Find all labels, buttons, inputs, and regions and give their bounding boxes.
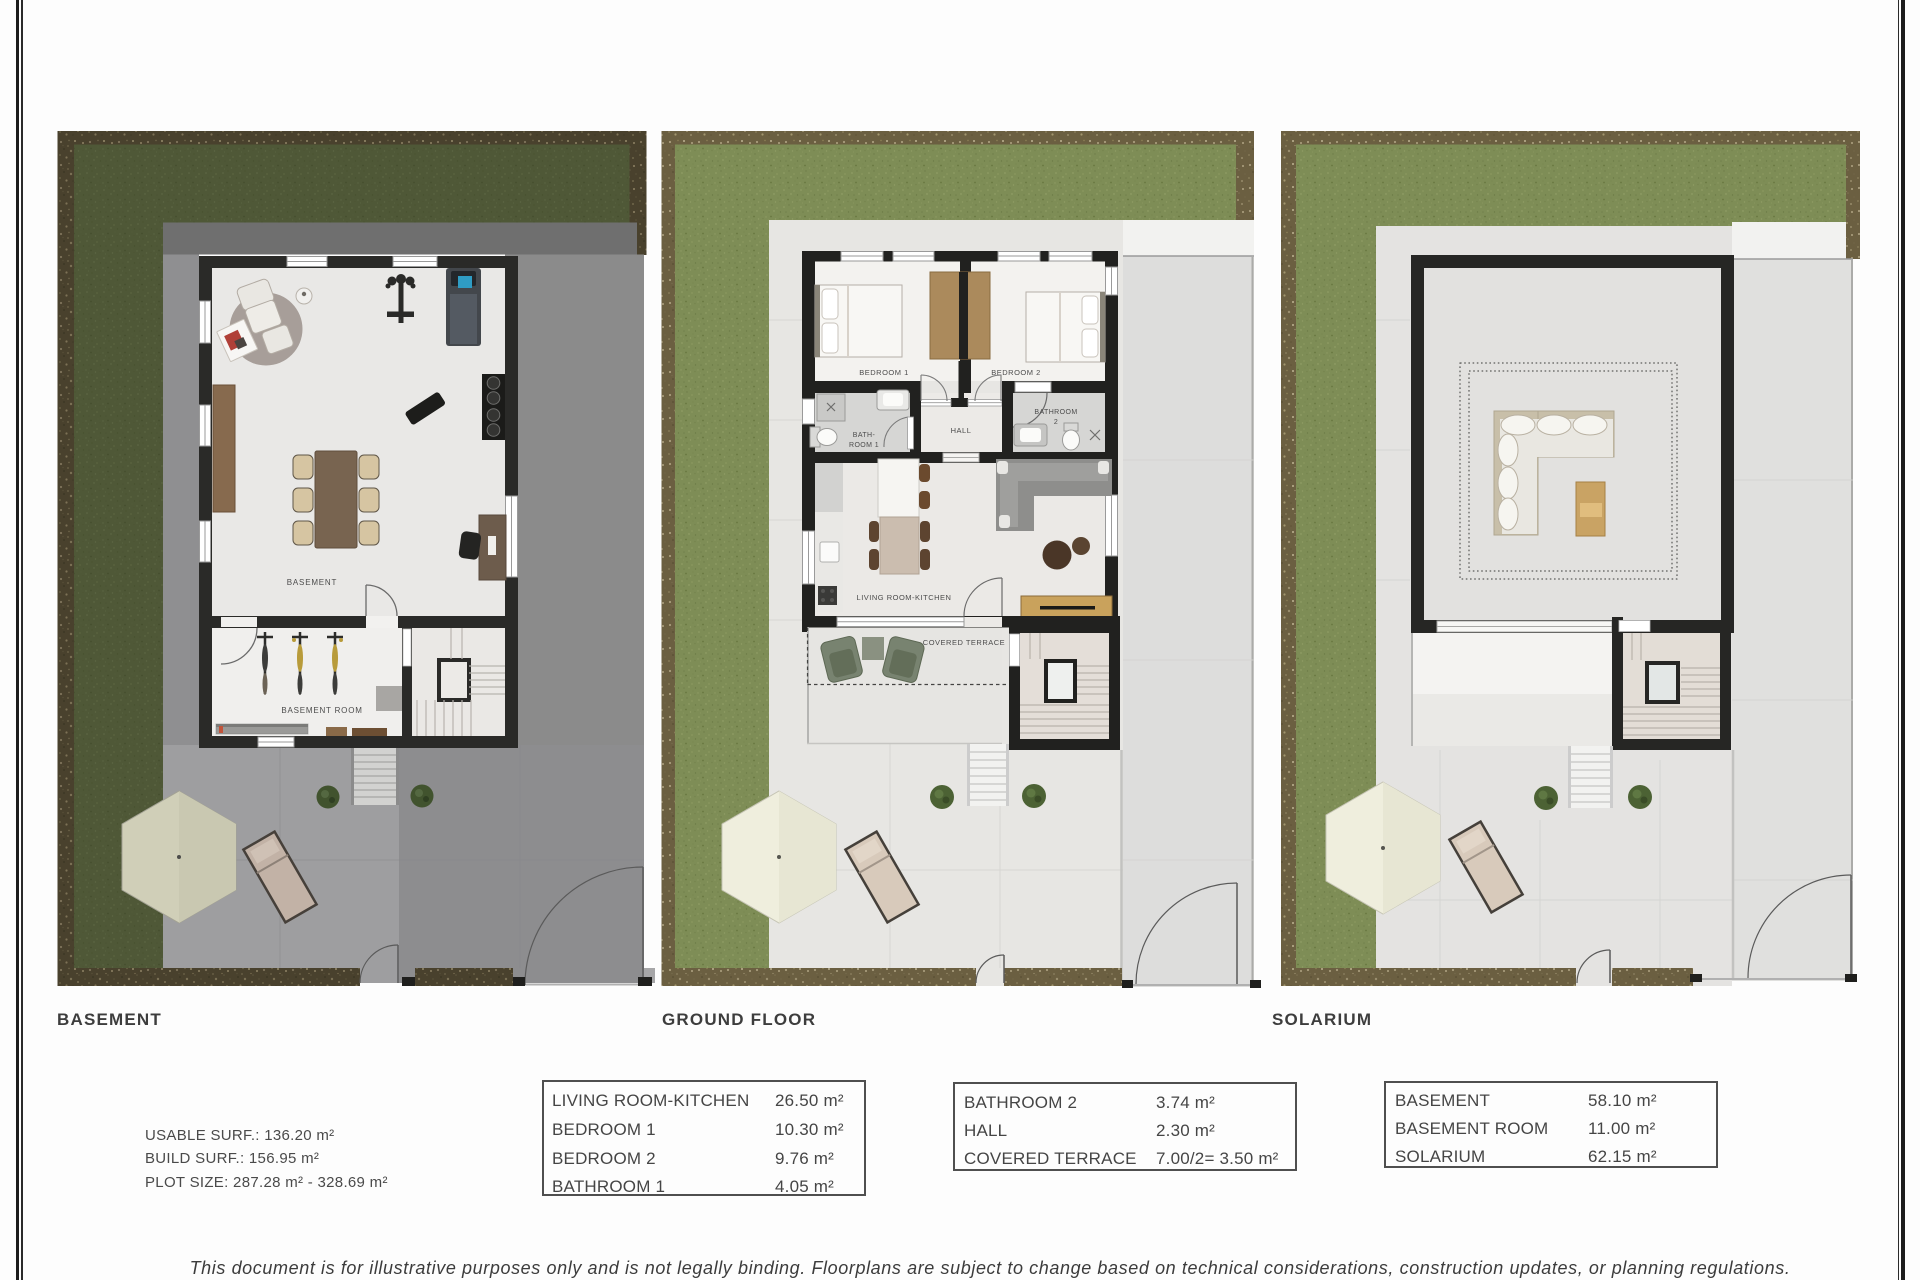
svg-text:2: 2: [1054, 419, 1058, 426]
svg-text:BATH-: BATH-: [853, 432, 876, 439]
svg-text:BASEMENT: BASEMENT: [287, 578, 337, 587]
svg-text:BATHROOM: BATHROOM: [1034, 409, 1077, 416]
svg-text:BASEMENT ROOM: BASEMENT ROOM: [281, 706, 362, 715]
svg-text:BEDROOM 2: BEDROOM 2: [991, 368, 1041, 377]
svg-text:BEDROOM 1: BEDROOM 1: [859, 368, 909, 377]
svg-text:LIVING ROOM-KITCHEN: LIVING ROOM-KITCHEN: [857, 593, 952, 602]
svg-text:COVERED TERRACE: COVERED TERRACE: [923, 638, 1005, 647]
svg-text:HALL: HALL: [951, 426, 972, 435]
svg-text:ROOM 1: ROOM 1: [849, 442, 879, 449]
